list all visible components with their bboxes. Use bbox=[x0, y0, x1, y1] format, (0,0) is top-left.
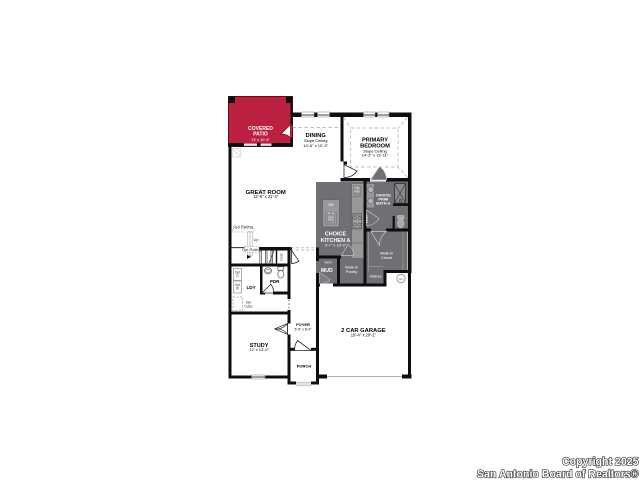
svg-text:W: W bbox=[236, 287, 239, 291]
svg-text:19'-4" x 20'-1": 19'-4" x 20'-1" bbox=[351, 332, 377, 337]
svg-text:5'-9" x 8'-4": 5'-9" x 8'-4" bbox=[294, 328, 312, 332]
svg-text:BATH A: BATH A bbox=[376, 200, 390, 205]
svg-text:WH: WH bbox=[399, 277, 404, 281]
svg-text:San Antonio Board of Realtors®: San Antonio Board of Realtors® bbox=[477, 469, 639, 480]
svg-text:Copyright 2025: Copyright 2025 bbox=[562, 456, 639, 468]
svg-text:12'-6" x 21'-4": 12'-6" x 21'-4" bbox=[253, 194, 279, 199]
svg-text:Ref: Ref bbox=[355, 190, 360, 194]
svg-text:Closet: Closet bbox=[381, 255, 393, 260]
svg-text:Cabs: Cabs bbox=[245, 305, 253, 309]
svg-text:12' x 13'-0": 12' x 13'-0" bbox=[249, 347, 269, 352]
svg-text:PDR: PDR bbox=[270, 279, 280, 284]
svg-text:13' x 10'-8": 13' x 10'-8" bbox=[251, 138, 270, 142]
svg-text:Linen: Linen bbox=[365, 215, 369, 223]
svg-text:10'-6" x 10'-3": 10'-6" x 10'-3" bbox=[303, 143, 328, 148]
svg-text:Pantry: Pantry bbox=[346, 269, 358, 274]
svg-text:LDY: LDY bbox=[247, 285, 256, 290]
svg-text:FOYER: FOYER bbox=[296, 322, 310, 327]
svg-text:PATIO: PATIO bbox=[253, 132, 268, 138]
svg-text:PORCH: PORCH bbox=[297, 364, 312, 369]
svg-text:Opt Railing: Opt Railing bbox=[242, 247, 262, 252]
svg-text:9'-7" x 19'-2": 9'-7" x 19'-2" bbox=[325, 242, 347, 247]
svg-text:Vent: Vent bbox=[324, 261, 331, 265]
svg-text:Up: Up bbox=[254, 237, 260, 242]
svg-text:CHOICE: CHOICE bbox=[325, 232, 347, 238]
svg-text:Shelves: Shelves bbox=[369, 275, 381, 279]
svg-text:MUD: MUD bbox=[321, 268, 333, 274]
svg-text:Opt Railing: Opt Railing bbox=[233, 224, 253, 229]
svg-text:14'-2" x 15'-11": 14'-2" x 15'-11" bbox=[362, 152, 389, 157]
svg-text:Coat: Coat bbox=[280, 253, 284, 260]
svg-text:DW: DW bbox=[328, 203, 333, 207]
